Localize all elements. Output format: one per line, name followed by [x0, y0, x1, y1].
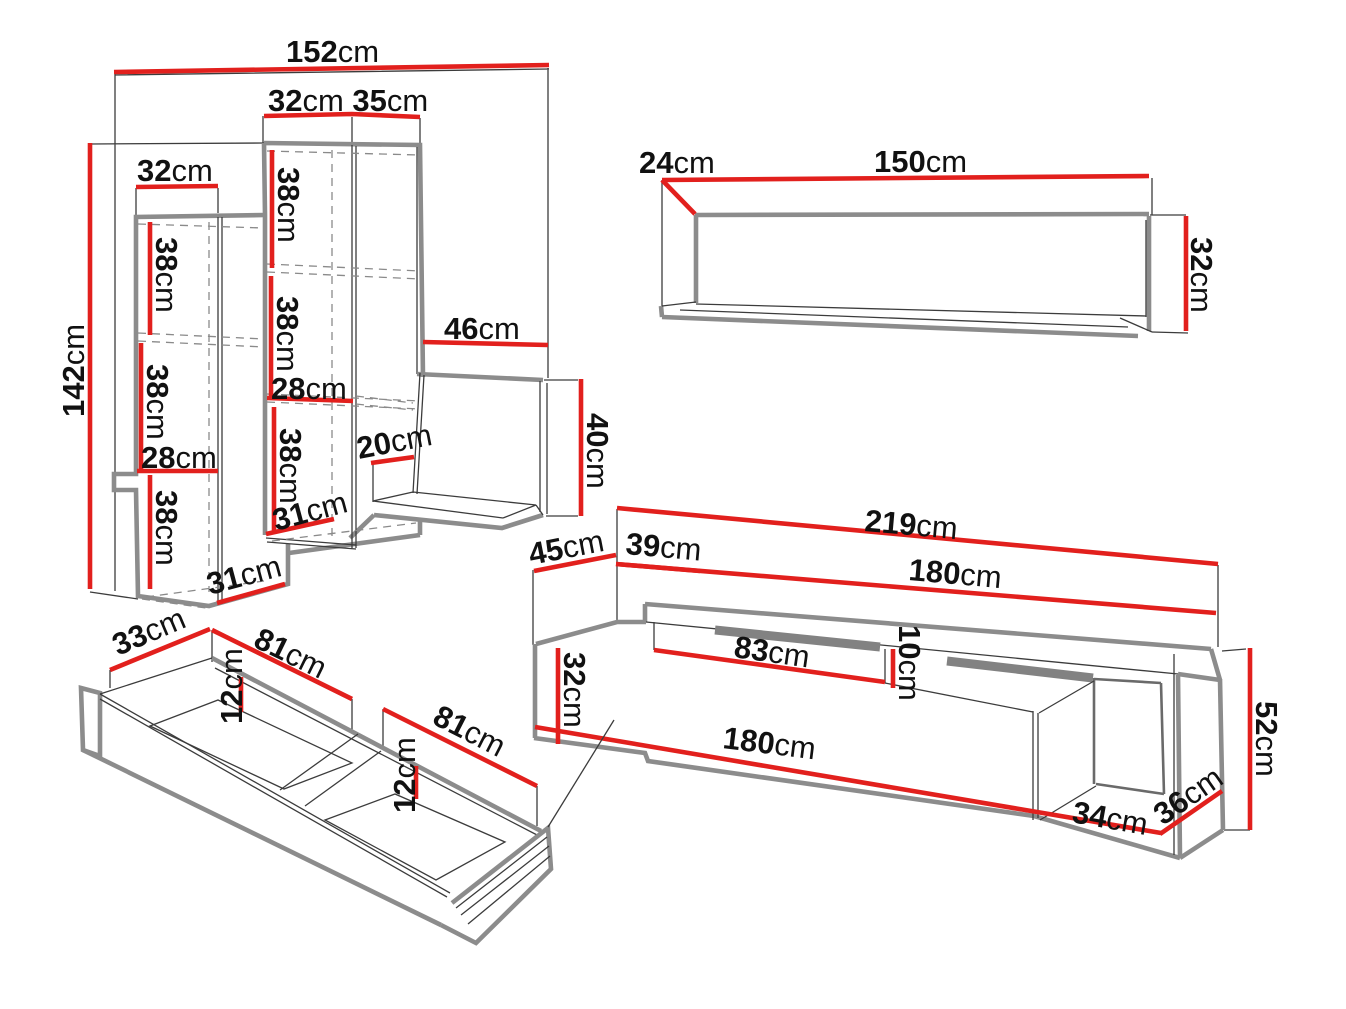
svg-text:10cm: 10cm	[892, 625, 927, 701]
svg-text:38cm: 38cm	[271, 167, 306, 243]
svg-text:39cm: 39cm	[624, 526, 703, 567]
svg-text:12cm: 12cm	[214, 648, 249, 724]
svg-text:32cm: 32cm	[1184, 237, 1219, 313]
svg-text:28cm: 28cm	[141, 440, 217, 475]
svg-text:32cm 35cm: 32cm 35cm	[268, 83, 428, 118]
svg-text:28cm: 28cm	[271, 371, 347, 406]
svg-text:142cm: 142cm	[56, 324, 91, 417]
svg-text:24cm: 24cm	[639, 145, 715, 180]
svg-text:38cm: 38cm	[149, 490, 184, 566]
svg-text:38cm: 38cm	[140, 364, 175, 440]
svg-text:46cm: 46cm	[444, 311, 520, 346]
svg-text:38cm: 38cm	[273, 428, 308, 504]
svg-text:52cm: 52cm	[1249, 701, 1284, 777]
svg-text:32cm: 32cm	[137, 153, 213, 188]
svg-text:152cm: 152cm	[286, 34, 379, 69]
svg-text:32cm: 32cm	[557, 652, 592, 728]
svg-text:38cm: 38cm	[149, 237, 184, 313]
svg-text:150cm: 150cm	[874, 144, 967, 179]
svg-text:40cm: 40cm	[580, 413, 615, 489]
svg-text:38cm: 38cm	[270, 296, 305, 372]
svg-text:12cm: 12cm	[387, 737, 422, 813]
